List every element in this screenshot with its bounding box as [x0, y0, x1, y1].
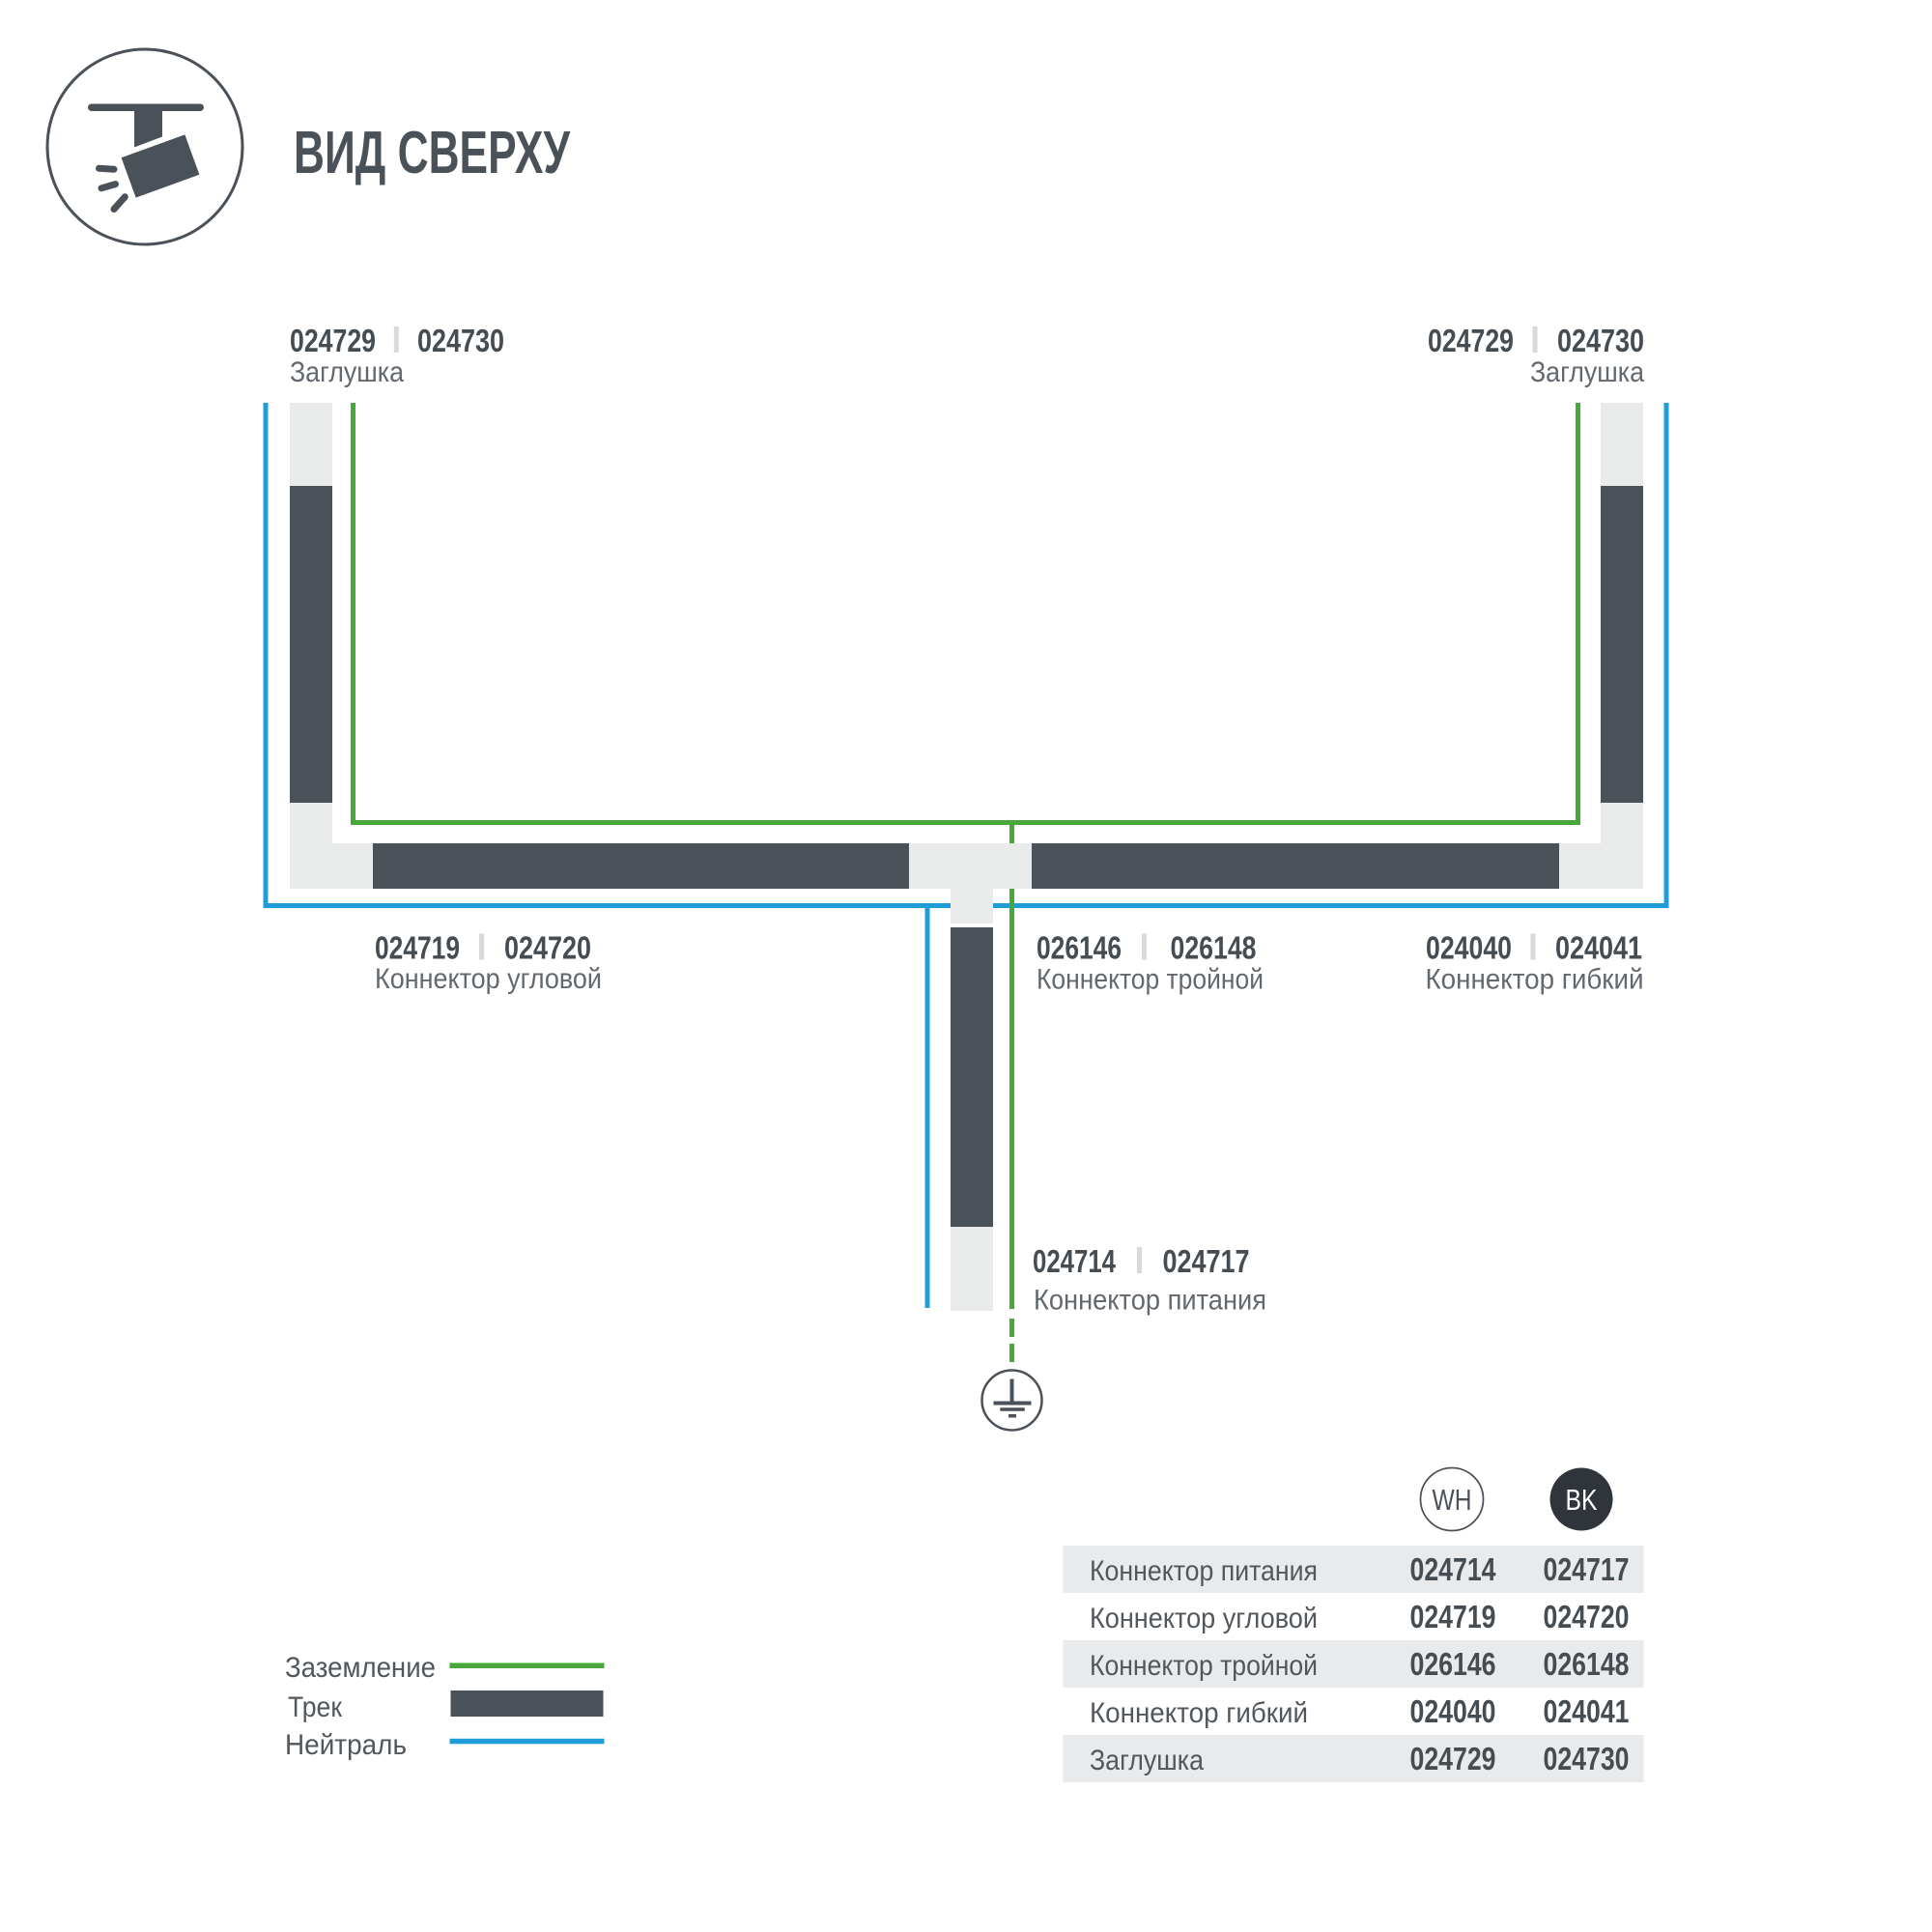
svg-text:Коннектор угловой: Коннектор угловой: [1090, 1603, 1318, 1634]
svg-text:Коннектор тройной: Коннектор тройной: [1037, 963, 1264, 995]
svg-text:024717: 024717: [1163, 1243, 1250, 1279]
svg-text:024729: 024729: [290, 323, 376, 358]
svg-text:Коннектор гибкий: Коннектор гибкий: [1426, 964, 1644, 996]
svg-text:026148: 026148: [1171, 930, 1257, 966]
svg-text:024730: 024730: [1544, 1741, 1630, 1776]
svg-text:024720: 024720: [504, 930, 591, 966]
svg-text:024720: 024720: [1544, 1599, 1630, 1634]
svg-text:024719: 024719: [1410, 1599, 1496, 1634]
svg-text:Коннектор угловой: Коннектор угловой: [375, 963, 602, 995]
svg-text:024717: 024717: [1544, 1551, 1630, 1587]
svg-text:Коннектор гибкий: Коннектор гибкий: [1090, 1697, 1308, 1729]
svg-text:024730: 024730: [417, 323, 504, 358]
svg-text:026146: 026146: [1410, 1646, 1496, 1682]
svg-text:Заглушка: Заглушка: [290, 356, 404, 388]
svg-text:024040: 024040: [1410, 1693, 1496, 1729]
svg-text:Коннектор питания: Коннектор питания: [1034, 1285, 1266, 1317]
svg-text:Заземление: Заземление: [285, 1652, 436, 1684]
svg-text:Коннектор питания: Коннектор питания: [1090, 1555, 1318, 1587]
svg-text:Нейтраль: Нейтраль: [285, 1729, 407, 1761]
svg-text:026148: 026148: [1544, 1646, 1630, 1682]
svg-text:024719: 024719: [375, 930, 460, 966]
svg-text:024040: 024040: [1426, 930, 1512, 966]
svg-text:ВИД СВЕРХУ: ВИД СВЕРХУ: [294, 120, 571, 186]
svg-text:Заглушка: Заглушка: [1090, 1745, 1204, 1776]
svg-text:024729: 024729: [1428, 323, 1514, 358]
svg-text:026146: 026146: [1037, 930, 1122, 966]
svg-text:024714: 024714: [1410, 1551, 1497, 1587]
svg-text:024041: 024041: [1544, 1693, 1630, 1729]
svg-text:Заглушка: Заглушка: [1530, 356, 1644, 388]
svg-text:BK: BK: [1566, 1483, 1598, 1517]
svg-text:Трек: Трек: [288, 1691, 343, 1723]
svg-text:WH: WH: [1433, 1483, 1472, 1517]
svg-text:024730: 024730: [1557, 323, 1644, 358]
svg-text:Коннектор тройной: Коннектор тройной: [1090, 1650, 1318, 1682]
svg-text:024714: 024714: [1033, 1243, 1116, 1279]
svg-text:024041: 024041: [1555, 930, 1642, 966]
svg-text:024729: 024729: [1410, 1741, 1496, 1776]
